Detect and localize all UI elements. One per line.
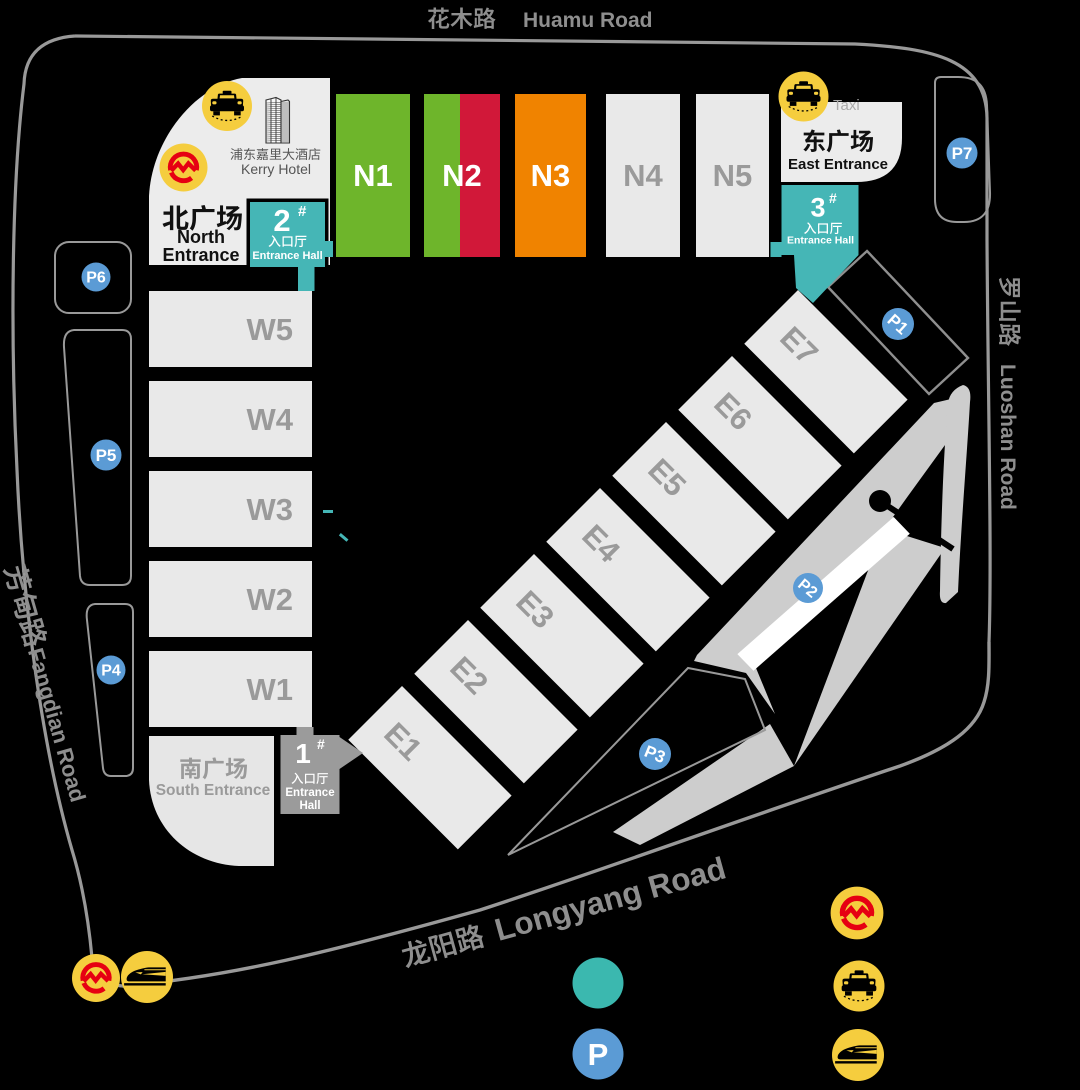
svg-text:North: North bbox=[177, 227, 225, 247]
svg-text:P: P bbox=[588, 1037, 609, 1072]
svg-text:2: 2 bbox=[273, 203, 290, 238]
svg-text:Entrance Hall: Entrance Hall bbox=[252, 250, 322, 262]
svg-text:P6: P6 bbox=[86, 270, 106, 287]
svg-text:N4: N4 bbox=[623, 158, 663, 193]
svg-text:3: 3 bbox=[810, 193, 825, 223]
svg-text:#: # bbox=[829, 190, 837, 206]
svg-text:N1: N1 bbox=[353, 158, 393, 193]
svg-text:N5: N5 bbox=[713, 158, 753, 193]
svg-text:W1: W1 bbox=[247, 672, 294, 707]
svg-text:Kerry Hotel: Kerry Hotel bbox=[241, 161, 311, 177]
svg-text:P4: P4 bbox=[101, 663, 121, 680]
svg-text:East Entrance: East Entrance bbox=[788, 156, 888, 173]
svg-text:P5: P5 bbox=[96, 446, 117, 465]
svg-text:W5: W5 bbox=[247, 312, 294, 347]
svg-text:Hall: Hall bbox=[299, 800, 320, 812]
svg-text:W4: W4 bbox=[247, 402, 294, 437]
svg-text:W2: W2 bbox=[247, 582, 294, 617]
svg-text:#: # bbox=[298, 203, 307, 220]
svg-text:#: # bbox=[317, 736, 325, 752]
svg-text:Entrance: Entrance bbox=[285, 787, 334, 799]
svg-text:Luoshan Road: Luoshan Road bbox=[996, 364, 1019, 510]
svg-text:Huamu Road: Huamu Road bbox=[523, 9, 653, 32]
svg-text:N2: N2 bbox=[442, 158, 482, 193]
svg-text:South Entrance: South Entrance bbox=[156, 782, 271, 799]
svg-text:P7: P7 bbox=[952, 144, 973, 163]
svg-text:W3: W3 bbox=[247, 492, 294, 527]
svg-text:Taxi: Taxi bbox=[833, 97, 860, 114]
svg-text:Entrance Hall: Entrance Hall bbox=[787, 235, 854, 247]
svg-text:Entrance: Entrance bbox=[162, 245, 239, 265]
svg-text:N3: N3 bbox=[531, 158, 571, 193]
svg-text:1: 1 bbox=[295, 738, 311, 769]
